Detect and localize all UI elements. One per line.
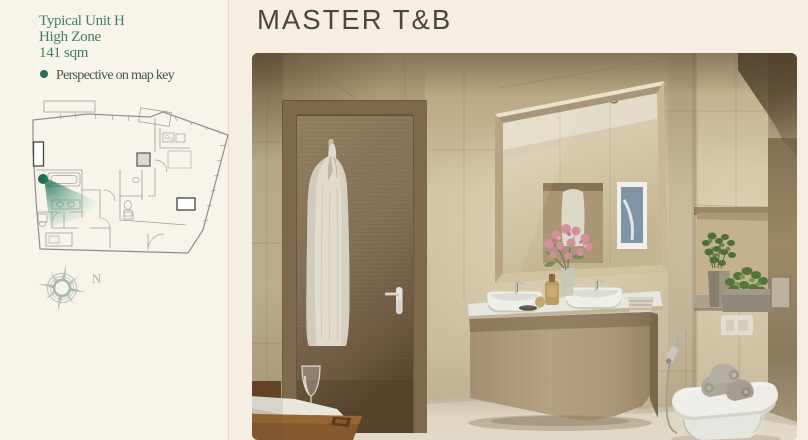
svg-text:N: N [92, 272, 101, 286]
svg-text:141 sqm: 141 sqm [39, 45, 89, 61]
svg-text:High Zone: High Zone [39, 29, 102, 45]
svg-text:Perspective on map key: Perspective on map key [56, 68, 175, 83]
svg-text:MASTER T&B: MASTER T&B [257, 4, 452, 35]
svg-text:Typical Unit H: Typical Unit H [39, 13, 125, 29]
